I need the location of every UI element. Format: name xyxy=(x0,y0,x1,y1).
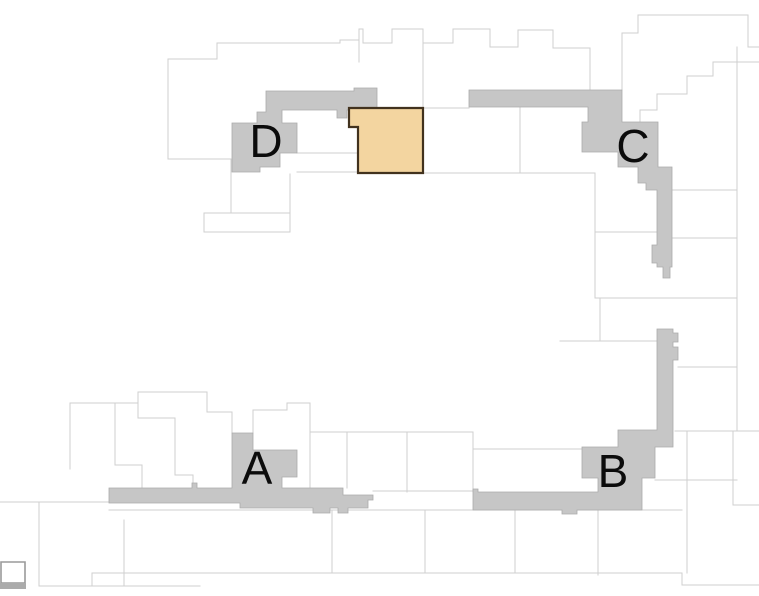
parcel-map-canvas: D C A B xyxy=(0,0,759,596)
selected-parcel[interactable] xyxy=(349,108,423,173)
parcel-map: D C A B xyxy=(0,0,759,596)
corner-road-chip xyxy=(0,583,26,589)
